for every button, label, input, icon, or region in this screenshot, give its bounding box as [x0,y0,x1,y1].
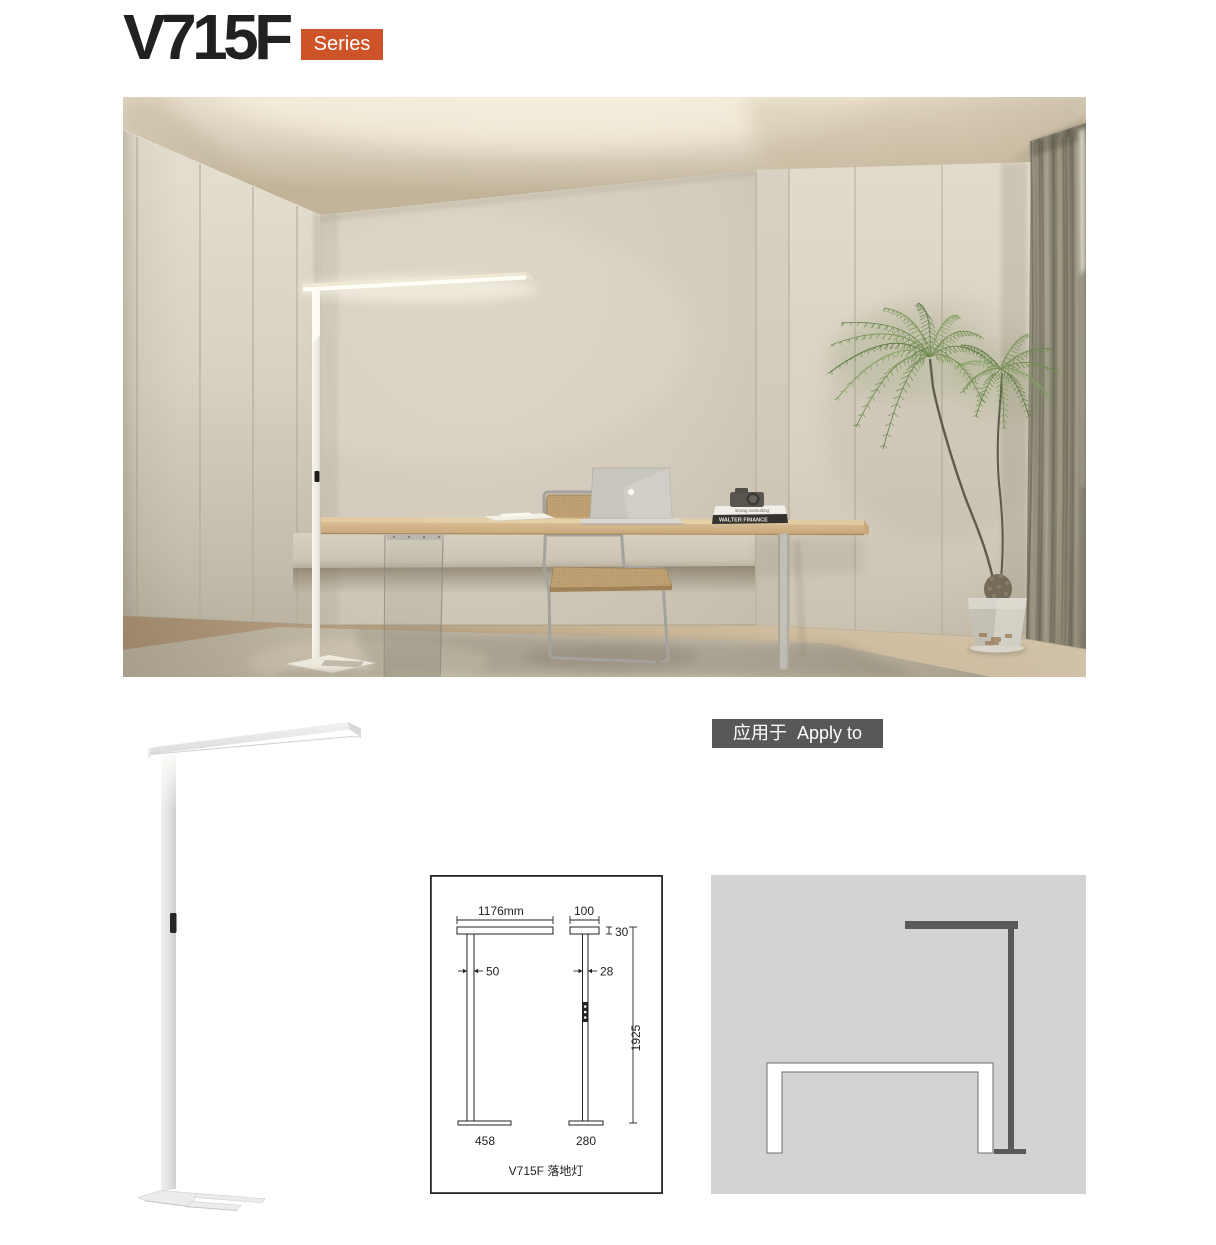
svg-text:V715F 落地灯: V715F 落地灯 [509,1164,584,1178]
svg-text:1925: 1925 [629,1024,643,1051]
svg-text:28: 28 [600,965,614,979]
svg-text:280: 280 [576,1134,596,1148]
svg-text:50: 50 [486,965,500,979]
svg-text:30: 30 [615,925,629,939]
svg-text:100: 100 [574,904,594,918]
svg-text:458: 458 [475,1134,495,1148]
svg-text:1176mm: 1176mm [478,904,524,918]
